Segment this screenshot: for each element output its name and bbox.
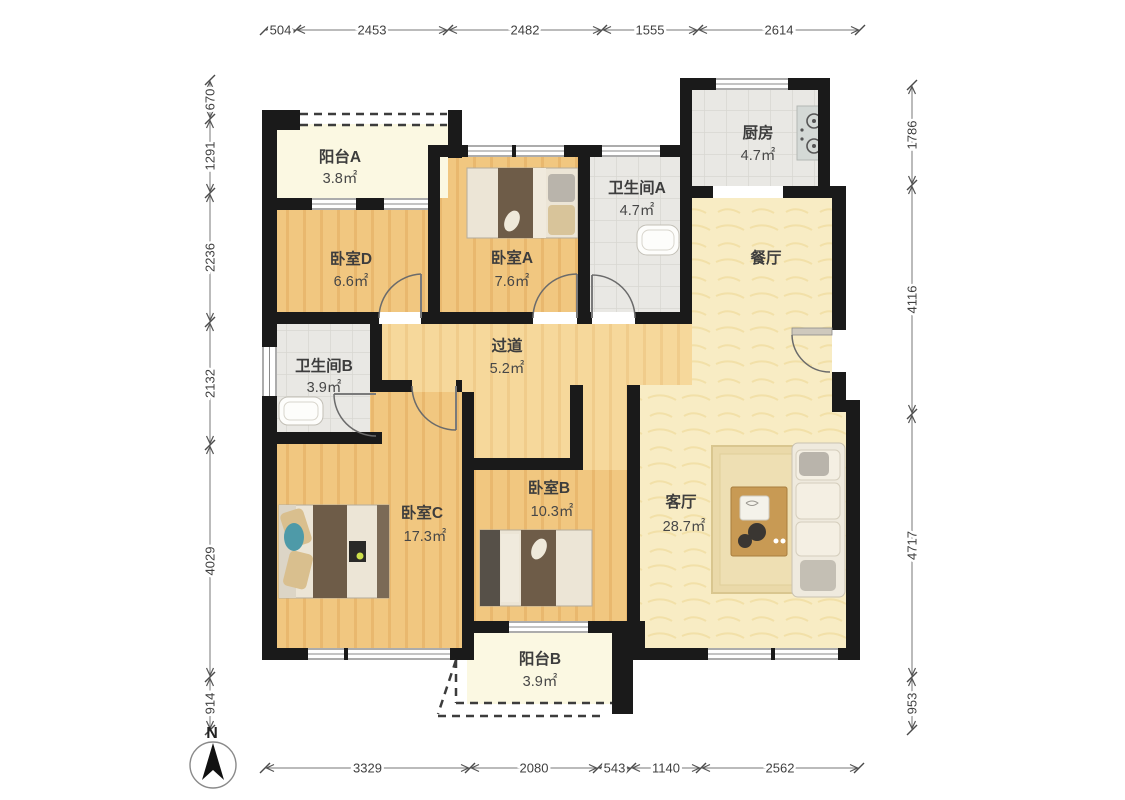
svg-text:厨房: 厨房 (742, 123, 773, 142)
svg-text:10.3㎡: 10.3㎡ (531, 503, 574, 520)
coffee-table (731, 487, 787, 556)
window-kitchen (712, 78, 792, 90)
svg-text:4.7㎡: 4.7㎡ (620, 202, 655, 219)
dimension-label: 2562 (766, 761, 795, 776)
svg-text:3.8㎡: 3.8㎡ (323, 170, 358, 187)
svg-text:餐厅: 餐厅 (749, 248, 782, 267)
dimension-label: 4717 (905, 531, 920, 560)
window-balcony-a-2 (380, 198, 432, 210)
window-bedroom-c (304, 648, 454, 660)
window-living (704, 648, 842, 660)
dimension-label: 2614 (765, 23, 794, 38)
svg-text:17.3㎡: 17.3㎡ (404, 528, 447, 545)
dimension-label: 543 (604, 761, 626, 776)
svg-text:3.9㎡: 3.9㎡ (523, 673, 558, 690)
dimension-label: 4116 (905, 286, 920, 314)
bath-fixture-icon (279, 397, 323, 425)
svg-text:卧室C: 卧室C (401, 503, 443, 522)
dimension-chain-bottom: 3329208054311402562 (260, 761, 864, 776)
dimension-chain-right: 178641164717953 (905, 80, 920, 735)
svg-text:卫生间A: 卫生间A (608, 178, 666, 197)
dimension-label: 2236 (203, 243, 218, 272)
dimension-label: 4029 (203, 547, 218, 576)
dining-floor (692, 198, 832, 412)
dimension-label: 670 (203, 89, 218, 111)
bed-b (480, 530, 592, 606)
window-bathroom-a (598, 145, 664, 157)
dimension-label: 2080 (520, 761, 549, 776)
compass: N (190, 725, 236, 788)
balcony-b-floor (467, 633, 612, 704)
svg-text:7.6㎡: 7.6㎡ (495, 273, 530, 290)
dimension-label: 1291 (203, 142, 218, 171)
svg-text:阳台A: 阳台A (319, 147, 361, 166)
dimension-label: 953 (905, 693, 920, 715)
svg-text:3.9㎡: 3.9㎡ (307, 379, 342, 396)
hallway-floor (382, 324, 692, 392)
dimension-chain-left: 6701291223621324029914 (203, 75, 218, 735)
compass-north-label: N (206, 725, 218, 742)
svg-text:卧室D: 卧室D (330, 249, 372, 268)
svg-text:过道: 过道 (491, 336, 523, 355)
svg-text:6.6㎡: 6.6㎡ (334, 273, 369, 290)
dimension-label: 2132 (203, 369, 218, 398)
window-bathroom-b (262, 343, 277, 400)
dimension-label: 1555 (636, 23, 665, 38)
window-balcony-a-1 (308, 198, 360, 210)
room-label-dining: 餐厅 (749, 248, 782, 267)
dimension-label: 504 (270, 23, 292, 38)
dimension-label: 2482 (511, 23, 540, 38)
balcony-a-floor (277, 124, 448, 198)
dimension-label: 1140 (652, 761, 680, 776)
svg-text:阳台B: 阳台B (519, 649, 561, 668)
floor-plan: 阳台A 3.8㎡ 卧室D 6.6㎡ 卧室A 7.6㎡ 卫生间A 4.7㎡ 厨房 … (0, 0, 1125, 800)
svg-text:4.7㎡: 4.7㎡ (741, 147, 776, 164)
svg-text:客厅: 客厅 (665, 492, 697, 511)
sofa (792, 443, 845, 597)
bed-a (467, 168, 578, 238)
svg-text:卫生间B: 卫生间B (295, 356, 353, 375)
svg-text:卧室A: 卧室A (491, 248, 533, 267)
dimension-label: 3329 (353, 761, 382, 776)
dimension-label: 1786 (905, 121, 920, 150)
dimension-chain-top: 5042453248215552614 (260, 23, 865, 38)
bed-c (279, 505, 389, 598)
window-balcony-b-door (505, 621, 592, 633)
dimension-label: 2453 (358, 23, 387, 38)
svg-text:28.7㎡: 28.7㎡ (663, 518, 706, 535)
window-bedroom-a (464, 145, 568, 157)
dimension-label: 914 (203, 693, 218, 715)
svg-text:5.2㎡: 5.2㎡ (490, 360, 525, 377)
bathtub-icon (637, 225, 679, 255)
svg-text:卧室B: 卧室B (528, 478, 570, 497)
